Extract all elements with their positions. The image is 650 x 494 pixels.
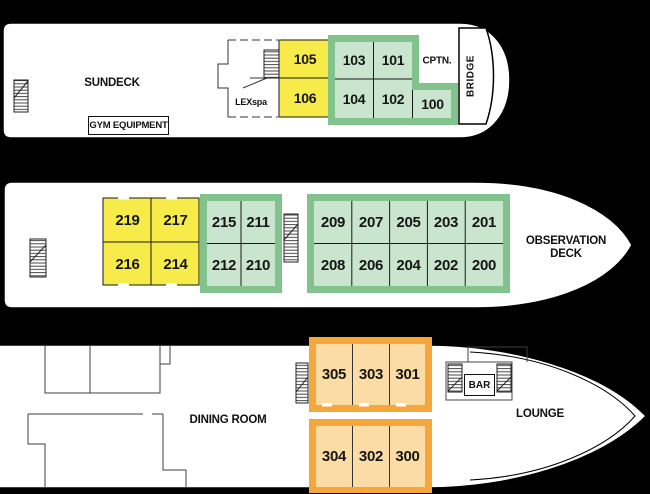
cabin-105[interactable]: 105	[280, 41, 330, 77]
cabin-104[interactable]: 104	[335, 80, 373, 118]
cabin-300[interactable]: 300	[390, 426, 425, 487]
observation-mid-stairs-icon	[284, 214, 298, 262]
cabin-207[interactable]: 207	[352, 201, 390, 243]
cabin-100[interactable]: 100	[414, 90, 451, 118]
cabin-203[interactable]: 203	[427, 201, 465, 243]
cabin-208[interactable]: 208	[314, 244, 352, 286]
cabin-211[interactable]: 211	[241, 201, 275, 243]
observation-stairs-icon	[30, 239, 46, 277]
cabin-212[interactable]: 212	[207, 244, 241, 286]
cabin-216[interactable]: 216	[104, 243, 151, 285]
cabin-101[interactable]: 101	[374, 42, 412, 78]
cabin-214[interactable]: 214	[152, 243, 199, 285]
cabin-206[interactable]: 206	[352, 244, 390, 286]
cabin-210[interactable]: 210	[241, 244, 275, 286]
bridge-label: BRIDGE	[466, 55, 477, 97]
cabin-102[interactable]: 102	[374, 80, 412, 118]
cabin-209[interactable]: 209	[314, 201, 352, 243]
cabin-215[interactable]: 215	[207, 201, 241, 243]
cabin-301[interactable]: 301	[390, 344, 425, 405]
cabin-202[interactable]: 202	[427, 244, 465, 286]
cabin-305[interactable]: 305	[316, 344, 352, 405]
lounge-label: LOUNGE	[516, 408, 564, 420]
cabin-201[interactable]: 201	[465, 201, 503, 243]
observation-deck-label: OBSERVATION DECK	[522, 235, 610, 261]
cabin-200[interactable]: 200	[465, 244, 503, 286]
cabin-103[interactable]: 103	[335, 42, 373, 78]
cabin-304[interactable]: 304	[316, 426, 352, 487]
captain-label: CPTN.	[422, 56, 451, 67]
cabin-303[interactable]: 303	[353, 344, 389, 405]
cabin-106[interactable]: 106	[280, 79, 330, 116]
dining-room-label: DINING ROOM	[189, 414, 266, 426]
deck-plan: SUNDECK GYM EQUIPMENT LEXspa CPTN. BRIDG…	[0, 0, 650, 494]
gym-equipment-box: GYM EQUIPMENT	[88, 116, 169, 135]
main-stairs-icon	[296, 363, 308, 403]
cabin-217[interactable]: 217	[152, 199, 199, 242]
cabin-219[interactable]: 219	[104, 199, 151, 242]
sundeck-stairs-icon	[14, 80, 28, 112]
lexspa-label: LEXspa	[235, 97, 267, 107]
bar-box: BAR	[464, 374, 495, 396]
sundeck-label: SUNDECK	[84, 77, 139, 89]
cabin-302[interactable]: 302	[353, 426, 389, 487]
cabin-204[interactable]: 204	[390, 244, 427, 286]
cabin-205[interactable]: 205	[390, 201, 427, 243]
